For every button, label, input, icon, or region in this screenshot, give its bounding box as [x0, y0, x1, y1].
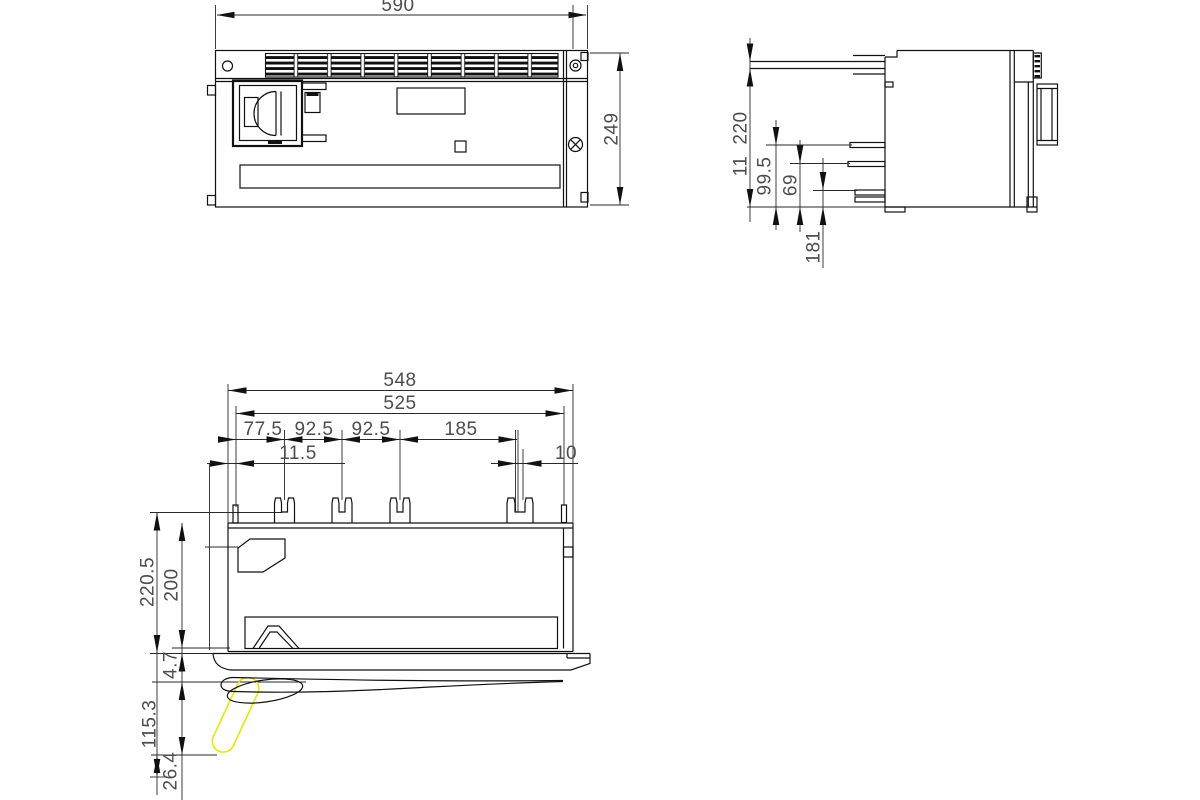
terminal-pin-right	[562, 505, 567, 523]
terminal-pin-left	[233, 505, 238, 523]
operating-lever	[209, 674, 563, 756]
handle-socket-assembly	[233, 81, 326, 147]
dim-label-200: 200	[162, 568, 183, 601]
dim-label-69: 69	[781, 174, 802, 196]
dim-label-10: 10	[555, 443, 577, 464]
dim-bottom-pitch-chain: 77.5 92.5 92.5 185	[218, 419, 518, 512]
dim-front-height: 249	[590, 53, 629, 205]
side-foot-left	[885, 207, 905, 212]
technical-drawing: 590 249	[0, 0, 1200, 800]
dim-label-26-4: 26.4	[161, 752, 182, 791]
screw-top-right	[570, 60, 581, 71]
dim-label-220-5: 220.5	[138, 557, 159, 607]
dim-bottom-heights: 220.5 200 4.7 115.3 26.4	[138, 513, 307, 800]
terminal-clip-1	[275, 498, 295, 523]
bottom-view: 548 525 77.5 92.5	[138, 370, 591, 800]
dim-label-185: 185	[444, 419, 477, 440]
dim-label-11-5: 11.5	[279, 443, 317, 464]
bottom-slot	[240, 165, 560, 188]
side-view: 220 11 99.5 69 181	[731, 38, 1058, 268]
recessed-panel	[245, 617, 558, 649]
dim-label-4-7: 4.7	[161, 651, 182, 679]
dim-bottom-pole-offset: 10	[491, 443, 578, 500]
interlock-cutout	[238, 539, 285, 572]
front-view: 590 249	[208, 0, 630, 207]
indicator-window	[455, 141, 466, 152]
lever-handle-highlight	[209, 674, 263, 756]
nameplate	[397, 88, 465, 114]
dim-label-249: 249	[602, 112, 623, 145]
dim-label-92-5b: 92.5	[352, 419, 391, 440]
terminal-clip-3	[390, 498, 410, 523]
dim-label-77-5: 77.5	[244, 419, 283, 440]
dim-label-181: 181	[804, 230, 825, 263]
left-mounting-tab-top	[208, 86, 216, 96]
dim-label-11: 11	[731, 156, 752, 177]
dim-label-115-3: 115.3	[140, 700, 161, 749]
dim-side-terminal2: 69	[781, 140, 804, 232]
dim-side-terminal3: 181	[804, 158, 827, 268]
terminal-clip-4	[507, 498, 533, 523]
screw-mid-right	[569, 138, 583, 152]
dim-label-220: 220	[731, 111, 752, 144]
dim-side-height: 220 11	[731, 38, 754, 222]
drawing-canvas: 590 249	[0, 0, 1200, 800]
vent-grille	[266, 54, 559, 78]
left-mounting-tab-bottom	[208, 196, 216, 206]
mounting-plate	[213, 654, 590, 671]
dim-label-99-5: 99.5	[755, 157, 776, 196]
dim-side-terminal1: 99.5	[755, 120, 780, 230]
lever-pivot-boss	[226, 675, 304, 707]
bottom-body	[228, 498, 573, 652]
dim-label-548: 548	[383, 370, 416, 391]
terminal-clip-2	[332, 498, 352, 523]
side-bracket	[1037, 84, 1058, 145]
dim-front-width: 590	[216, 0, 588, 49]
dim-label-92-5a: 92.5	[295, 419, 334, 440]
panel-hole	[223, 61, 233, 71]
din-clip-hatch	[1033, 53, 1041, 78]
dim-label-525: 525	[383, 393, 416, 414]
dim-label-590: 590	[381, 0, 414, 16]
